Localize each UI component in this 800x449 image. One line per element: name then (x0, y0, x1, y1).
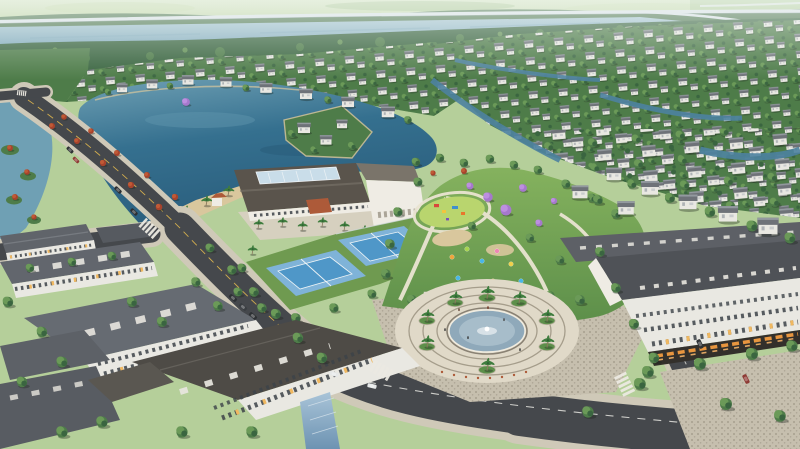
fountain-plaza (395, 279, 579, 383)
atmospheric-haze (0, 0, 800, 80)
aerial-render-image (0, 0, 800, 449)
fountain-pool (449, 310, 525, 352)
